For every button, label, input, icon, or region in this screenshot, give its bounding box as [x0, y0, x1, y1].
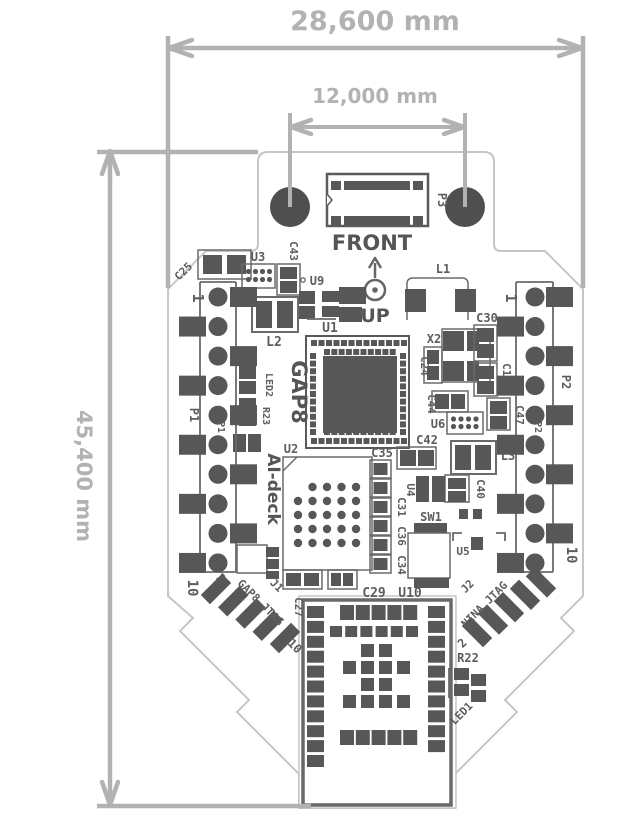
- module-pad: [428, 740, 445, 752]
- cap-pad: [374, 501, 388, 513]
- qfn-pad: [331, 349, 337, 355]
- module-pad: [428, 621, 445, 633]
- qfn-pad: [379, 438, 385, 444]
- qfn-pad: [356, 340, 362, 346]
- module-pad: [361, 661, 374, 674]
- qfn-pad: [400, 353, 406, 359]
- svg-text:C34: C34: [395, 555, 408, 575]
- through-hole: [209, 524, 228, 543]
- through-hole: [209, 494, 228, 513]
- module-pad: [360, 626, 372, 637]
- svg-text:X2: X2: [427, 332, 441, 346]
- bga-dot: [337, 511, 345, 519]
- bga-dot: [294, 525, 302, 533]
- qfn-pad: [339, 349, 345, 355]
- dimension-hole-spacing-value: 12,000 mm: [312, 84, 438, 108]
- bga-dot: [294, 539, 302, 547]
- svg-text:U1: U1: [322, 321, 338, 336]
- bga-dot: [323, 483, 331, 491]
- module-pad: [307, 710, 324, 722]
- pcb-mechanical-drawing: P3 FRONT UP C25 U3 C43 U9: [0, 0, 641, 830]
- qfn-pad: [401, 340, 407, 346]
- svg-text:C36: C36: [395, 526, 408, 546]
- qfn-pad: [364, 438, 370, 444]
- bga-dot: [337, 539, 345, 547]
- qfn-pad: [375, 349, 381, 355]
- header-pad: [230, 405, 257, 425]
- module-pad: [387, 730, 401, 745]
- front-label: FRONT: [332, 231, 413, 255]
- module-pad: [307, 666, 324, 678]
- svg-text:L2: L2: [266, 335, 282, 350]
- dimension-height-value: 45,400 mm: [72, 410, 96, 542]
- qfn-pad: [379, 340, 385, 346]
- header-pad: [497, 553, 524, 573]
- module-pad: [428, 725, 445, 737]
- module-pad: [379, 678, 392, 691]
- qfn-pad: [394, 340, 400, 346]
- component-u1-gap8: U1 GAP8: [287, 321, 409, 448]
- qfn-pad: [390, 349, 396, 355]
- svg-text:C30: C30: [476, 311, 498, 325]
- svg-text:C40: C40: [474, 479, 487, 499]
- svg-text:C35: C35: [371, 446, 393, 460]
- through-hole: [526, 376, 545, 395]
- qfn-pad: [334, 438, 340, 444]
- module-pad: [307, 740, 324, 752]
- svg-text:C42: C42: [416, 433, 438, 447]
- svg-text:C47: C47: [513, 405, 526, 425]
- qfn-pad: [361, 349, 367, 355]
- dimension-width-value: 28,600 mm: [290, 6, 460, 37]
- qfn-pad: [353, 349, 359, 355]
- header-pad: [179, 435, 206, 455]
- through-hole: [526, 288, 545, 307]
- module-pad: [376, 626, 388, 637]
- module-pad: [361, 644, 374, 657]
- header-pad: [179, 376, 206, 396]
- module-pad: [397, 661, 410, 674]
- module-pad: [356, 605, 370, 620]
- module-pad: [307, 621, 324, 633]
- svg-text:P1: P1: [215, 421, 226, 433]
- svg-text:P2: P2: [559, 375, 573, 389]
- svg-text:L1: L1: [436, 262, 450, 276]
- qfn-pad: [310, 353, 316, 359]
- bga-dot: [337, 497, 345, 505]
- module-pad: [345, 626, 357, 637]
- module-pad: [428, 651, 445, 663]
- svg-text:U9: U9: [310, 274, 324, 288]
- module-pad: [403, 730, 417, 745]
- bga-dot: [352, 497, 360, 505]
- up-label: UP: [360, 305, 389, 327]
- module-pad: [428, 666, 445, 678]
- module-pad: [379, 644, 392, 657]
- through-hole: [526, 347, 545, 366]
- through-hole: [209, 376, 228, 395]
- ic-dot: [451, 416, 456, 421]
- svg-text:U4: U4: [404, 483, 417, 497]
- qfn-pad: [400, 421, 406, 427]
- bga-dot: [308, 483, 316, 491]
- ic-dot: [253, 269, 258, 274]
- svg-text:C27: C27: [292, 597, 305, 617]
- svg-text:C43: C43: [287, 241, 300, 261]
- qfn-pad: [356, 438, 362, 444]
- ic-dot: [260, 269, 265, 274]
- p3-label: P3: [435, 193, 449, 207]
- module-pad: [307, 606, 324, 618]
- bga-dot: [294, 497, 302, 505]
- qfn-pad: [349, 340, 355, 346]
- svg-text:C31: C31: [395, 497, 408, 517]
- qfn-pad: [400, 368, 406, 374]
- module-pad: [330, 626, 342, 637]
- cap-pad: [374, 482, 388, 494]
- qfn-pad: [400, 361, 406, 367]
- module-pad: [428, 636, 445, 648]
- gap8-silkscreen: GAP8: [287, 360, 311, 424]
- qfn-pad: [311, 438, 317, 444]
- header-pad: [546, 346, 573, 366]
- qfn-pad: [319, 340, 325, 346]
- bga-dot: [352, 539, 360, 547]
- module-pad: [307, 681, 324, 693]
- ic-dot: [253, 277, 258, 282]
- header-pad: [497, 317, 524, 337]
- bga-dot: [352, 483, 360, 491]
- qfn-pad: [326, 438, 332, 444]
- bga-dot: [308, 511, 316, 519]
- bga-dot: [352, 525, 360, 533]
- module-pad: [387, 605, 401, 620]
- bga-dot: [323, 511, 331, 519]
- header-pad: [230, 287, 257, 307]
- module-pad: [356, 730, 370, 745]
- cap-pad: [374, 520, 388, 532]
- svg-text:P1: P1: [187, 408, 201, 422]
- module-pad: [428, 606, 445, 618]
- module-pad: [307, 725, 324, 737]
- header-pad: [497, 494, 524, 514]
- ic-dot: [466, 424, 471, 429]
- qfn-pad: [310, 429, 316, 435]
- svg-text:U6: U6: [431, 417, 445, 431]
- svg-text:U2: U2: [284, 442, 298, 456]
- bga-dot: [337, 483, 345, 491]
- ic-dot: [267, 269, 272, 274]
- module-pad: [406, 626, 418, 637]
- header-pad: [497, 376, 524, 396]
- ic-dot: [473, 424, 478, 429]
- module-pad: [361, 695, 374, 708]
- qfn-pad: [364, 340, 370, 346]
- module-pad: [307, 755, 324, 767]
- header-pad: [546, 464, 573, 484]
- module-pad: [307, 636, 324, 648]
- qfn-pad: [400, 399, 406, 405]
- bga-dot: [308, 497, 316, 505]
- qfn-pad: [400, 429, 406, 435]
- qfn-pad: [401, 438, 407, 444]
- svg-text:P2: P2: [532, 421, 543, 433]
- cap-pad: [374, 463, 388, 475]
- module-pad: [403, 605, 417, 620]
- module-pad: [391, 626, 403, 637]
- header-pad: [179, 317, 206, 337]
- module-pad: [372, 730, 386, 745]
- qfn-pad: [368, 349, 374, 355]
- module-pad: [343, 661, 356, 674]
- through-hole: [526, 317, 545, 336]
- ic-dot: [260, 277, 265, 282]
- module-pad: [379, 695, 392, 708]
- svg-text:R23: R23: [260, 407, 271, 425]
- through-hole: [526, 465, 545, 484]
- module-pad: [428, 710, 445, 722]
- cap-pad: [374, 558, 388, 570]
- module-pad: [372, 605, 386, 620]
- through-hole: [209, 435, 228, 454]
- header-pad: [546, 523, 573, 543]
- bga-dot: [323, 497, 331, 505]
- ic-dot: [246, 277, 251, 282]
- svg-text:10: 10: [563, 547, 579, 564]
- svg-text:LED2: LED2: [263, 373, 274, 397]
- ic-dot: [451, 424, 456, 429]
- module-pad: [361, 678, 374, 691]
- svg-text:10: 10: [184, 580, 200, 597]
- header-pad: [179, 494, 206, 514]
- through-hole: [526, 494, 545, 513]
- qfn-pad: [319, 438, 325, 444]
- module-pad: [340, 605, 354, 620]
- header-pad: [546, 287, 573, 307]
- svg-text:1: 1: [189, 293, 207, 302]
- cap-pad: [374, 539, 388, 551]
- header-pad: [230, 523, 257, 543]
- svg-text:1: 1: [502, 293, 520, 302]
- module-pad: [343, 695, 356, 708]
- qfn-pad: [400, 376, 406, 382]
- bga-dot: [294, 511, 302, 519]
- bga-dot: [323, 525, 331, 533]
- through-hole: [209, 465, 228, 484]
- svg-text:U5: U5: [456, 545, 469, 558]
- qfn-pad: [341, 340, 347, 346]
- ic-dot: [466, 416, 471, 421]
- through-hole: [526, 435, 545, 454]
- ic-dot: [458, 416, 463, 421]
- component-c40: C40: [445, 475, 487, 502]
- qfn-pad: [341, 438, 347, 444]
- module-pad: [428, 695, 445, 707]
- bga-dot: [308, 525, 316, 533]
- qfn-pad: [371, 438, 377, 444]
- module-pad: [379, 661, 392, 674]
- ic-dot: [246, 269, 251, 274]
- qfn-pad: [400, 391, 406, 397]
- qfn-pad: [394, 438, 400, 444]
- qfn-pad: [386, 438, 392, 444]
- qfn-pad: [311, 340, 317, 346]
- svg-text:R22: R22: [457, 651, 479, 665]
- header-pad: [230, 464, 257, 484]
- through-hole: [209, 288, 228, 307]
- module-pad: [307, 695, 324, 707]
- svg-text:C29: C29: [362, 586, 385, 601]
- qfn-pad: [400, 383, 406, 389]
- ic-dot: [473, 416, 478, 421]
- through-hole: [209, 317, 228, 336]
- header-pad: [546, 405, 573, 425]
- qfn-pad: [324, 349, 330, 355]
- aideck-silkscreen: AI-deck: [263, 453, 283, 525]
- qfn-pad: [386, 340, 392, 346]
- through-hole: [209, 347, 228, 366]
- svg-text:SW1: SW1: [420, 510, 442, 524]
- nina-module: [299, 596, 456, 808]
- svg-text:U3: U3: [251, 250, 265, 264]
- qfn-pad: [400, 414, 406, 420]
- ic-dot: [458, 424, 463, 429]
- svg-text:U10: U10: [398, 586, 422, 601]
- module-pad: [307, 651, 324, 663]
- module-pad: [340, 730, 354, 745]
- qfn-pad: [334, 340, 340, 346]
- module-pad: [428, 681, 445, 693]
- qfn-pad: [400, 406, 406, 412]
- module-pad: [397, 695, 410, 708]
- header-pad: [497, 435, 524, 455]
- bga-dot: [308, 539, 316, 547]
- qfn-pad: [346, 349, 352, 355]
- ic-dot: [267, 277, 272, 282]
- through-hole: [526, 524, 545, 543]
- qfn-pad: [349, 438, 355, 444]
- qfn-pad: [326, 340, 332, 346]
- header-pad: [230, 346, 257, 366]
- header-pad: [179, 553, 206, 573]
- bga-dot: [323, 539, 331, 547]
- bga-dot: [337, 525, 345, 533]
- bga-dot: [352, 511, 360, 519]
- qfn-pad: [382, 349, 388, 355]
- qfn-pad: [371, 340, 377, 346]
- through-hole: [209, 553, 228, 572]
